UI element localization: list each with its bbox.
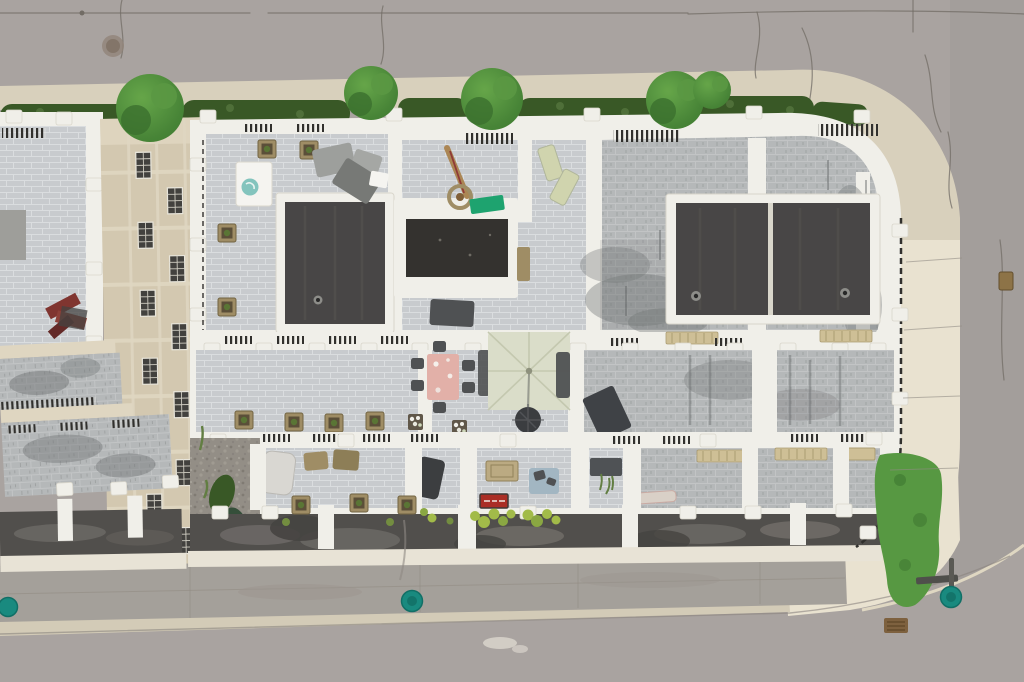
aerial-scene — [0, 0, 1024, 682]
aerial-photo-stage — [0, 0, 1024, 682]
photo-haze — [0, 0, 1024, 682]
